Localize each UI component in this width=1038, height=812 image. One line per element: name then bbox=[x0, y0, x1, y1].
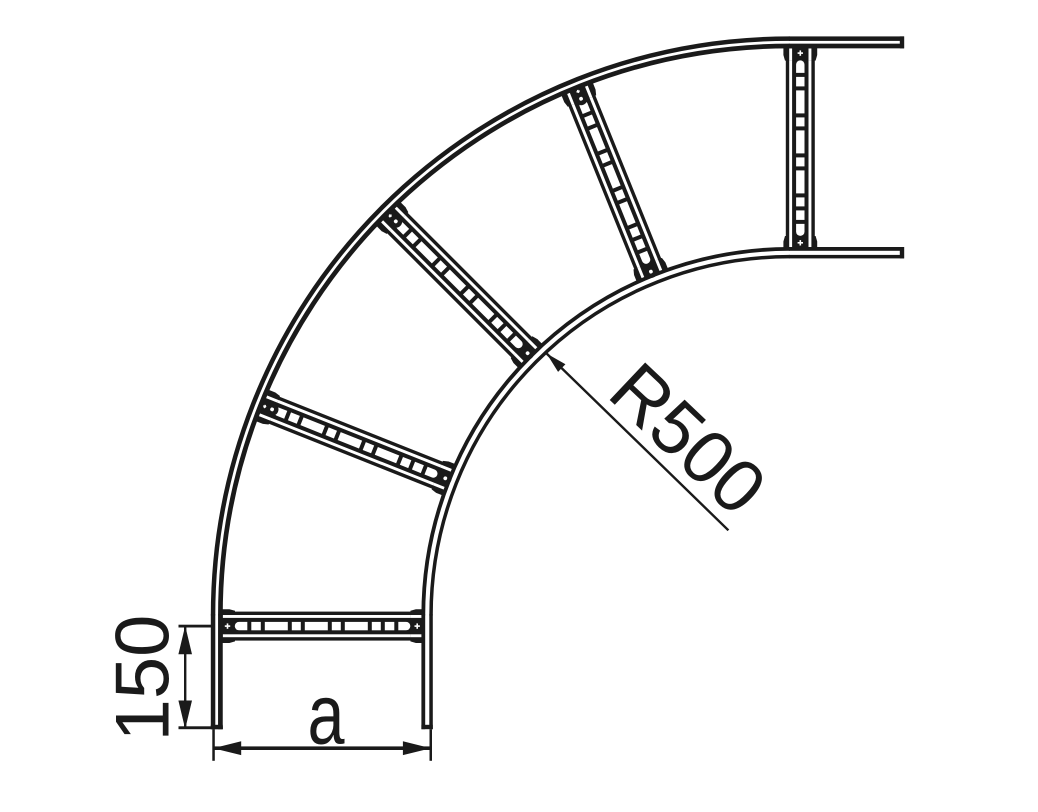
svg-text:a: a bbox=[308, 668, 346, 763]
svg-text:150: 150 bbox=[101, 615, 186, 742]
